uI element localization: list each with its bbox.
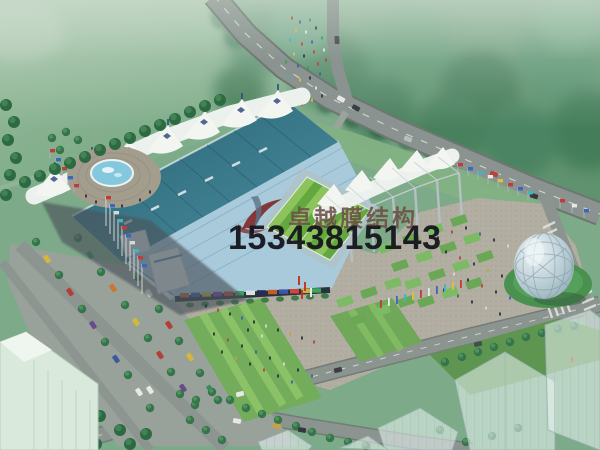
rendering-image: 卓越膜结构 15343815143 bbox=[0, 0, 600, 450]
stadium-aerial-scene bbox=[0, 0, 600, 450]
fountain-pool bbox=[91, 160, 133, 186]
atmospheric-haze bbox=[0, 0, 600, 60]
glass-dome bbox=[514, 233, 574, 299]
